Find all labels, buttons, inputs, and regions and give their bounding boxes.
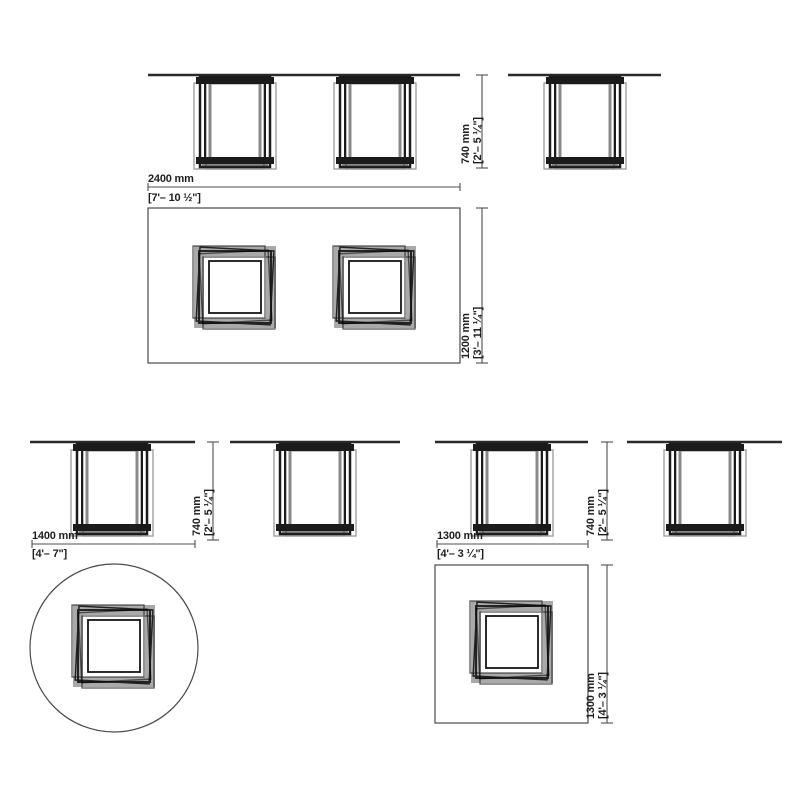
tabletop-outline [435, 565, 588, 723]
table-base [470, 601, 552, 684]
dimension-label-mm: 740 mm [460, 124, 472, 164]
table-base-left [194, 77, 276, 169]
dimension-label-mm: 740 mm [191, 496, 203, 536]
square-table-plan-view [435, 565, 588, 723]
dimension-label-imperial: [7'– 10 ½"] [148, 192, 201, 204]
technical-drawing-canvas: 2400 mm [7'– 10 ½"] 740 mm [2'– 5 ¼"] 12… [0, 0, 800, 800]
dimension-label-imperial: [3'– 11 ¼"] [472, 306, 484, 359]
dimension-label-imperial: [2'– 5 ¼"] [472, 117, 484, 164]
drawing-svg: 2400 mm [7'– 10 ½"] 740 mm [2'– 5 ¼"] 12… [0, 0, 800, 800]
dimension-label-imperial: [4'– 7"] [32, 548, 68, 560]
table-base-right [334, 77, 416, 169]
table-base [471, 444, 553, 536]
table-base [544, 77, 626, 169]
dimension-label-imperial: [2'– 5 ¼"] [597, 489, 609, 536]
dimension-label-mm: 1300 mm [437, 530, 483, 542]
table-base [664, 444, 746, 536]
dimension-label-imperial: [2'– 5 ¼"] [203, 489, 215, 536]
depth-dimension-1200: 1200 mm [3'– 11 ¼"] [460, 208, 488, 363]
dimension-label-mm: 1400 mm [32, 530, 78, 542]
depth-dimension-1300: 1300 mm [4'– 3 ¼"] [585, 565, 613, 723]
height-dimension-740-top: 740 mm [2'– 5 ¼"] [460, 75, 488, 168]
rect-table-end-view [508, 75, 661, 169]
table-base [71, 444, 153, 536]
table-base-left [193, 246, 275, 329]
height-dimension-740-right: 740 mm [2'– 5 ¼"] [585, 442, 613, 540]
dimension-label-mm: 2400 mm [148, 173, 194, 185]
height-dimension-740-left: 740 mm [2'– 5 ¼"] [191, 442, 219, 540]
width-dimension-2400: 2400 mm [7'– 10 ½"] [148, 173, 460, 204]
tabletop-outline [30, 564, 198, 732]
round-table-plan-view [30, 564, 198, 732]
dimension-label-imperial: [4'– 3 ¼"] [597, 672, 609, 719]
round-table-front-view [30, 442, 195, 536]
rect-table-front-view [148, 75, 460, 169]
round-table-end-view [230, 442, 400, 536]
square-table-front-view [435, 442, 588, 536]
dimension-label-mm: 1200 mm [460, 313, 472, 359]
dimension-label-mm: 740 mm [585, 496, 597, 536]
dimension-label-mm: 1300 mm [585, 673, 597, 719]
table-base-right [333, 246, 415, 329]
table-base [274, 444, 356, 536]
rect-table-plan-view [148, 208, 460, 363]
dimension-label-imperial: [4'– 3 ¼"] [437, 548, 484, 560]
table-base [72, 605, 154, 688]
square-table-end-view [627, 442, 782, 536]
